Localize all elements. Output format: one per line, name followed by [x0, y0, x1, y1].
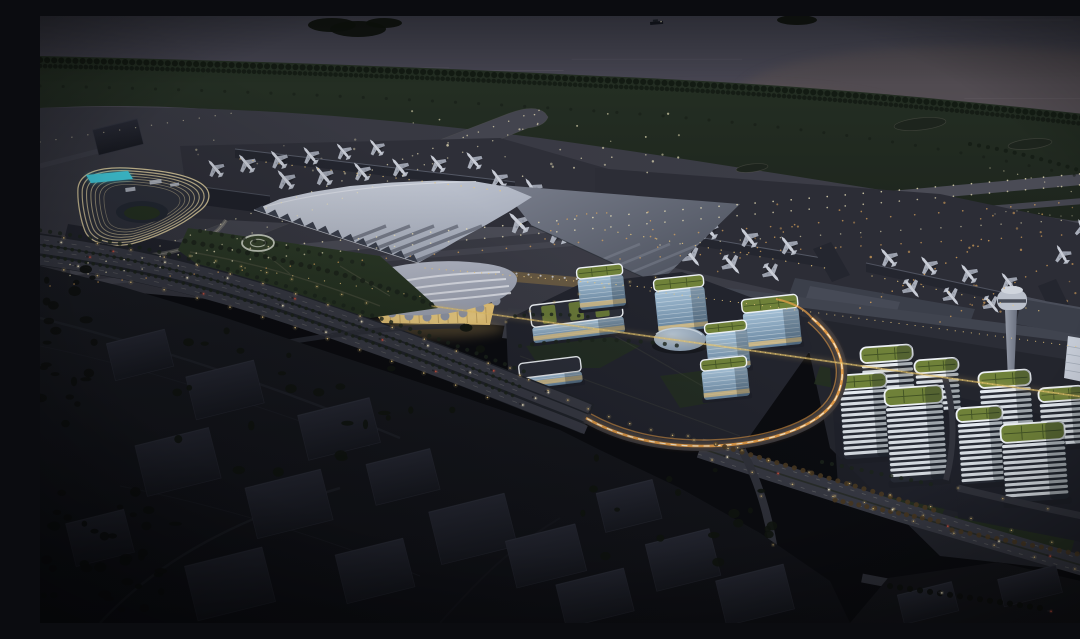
scene-canvas	[40, 16, 1080, 623]
top-shadow	[40, 16, 1080, 86]
airport-aerial-rendering: Aerial night rendering of a coastal airp…	[40, 16, 1080, 623]
corner-shadow	[40, 16, 1080, 623]
